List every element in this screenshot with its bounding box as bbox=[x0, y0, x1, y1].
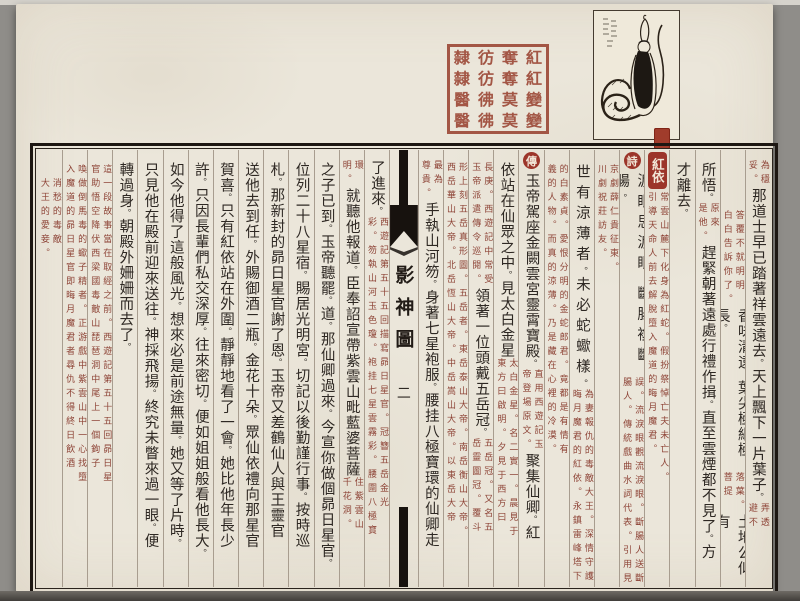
text-column-L4: 位列二十八星宿。賜居光明宮。切記以後勤謹行事。按時巡 bbox=[288, 150, 313, 587]
commentary-line-right: 太白金星。名二實一。晨見于 bbox=[506, 358, 518, 540]
commentary-line-right: 長庚。西遊記中常受 bbox=[481, 162, 493, 288]
spine-top-bar bbox=[399, 150, 408, 205]
text-column-L11: 轉過身。朝殿外姍姍而去了。 bbox=[112, 150, 137, 587]
text-column-R7: 京劇薛仁貴征東。川劇祝莊訪友。 bbox=[594, 150, 619, 587]
commentary-line-left: 明。 bbox=[340, 160, 352, 188]
commentary-line-left: 千花洞。 bbox=[340, 477, 352, 533]
seal-glyph: 隸 bbox=[449, 47, 475, 68]
commentary-line-right: 京劇薛仁貴征東。 bbox=[607, 164, 619, 276]
commentary-line-right: 落葉。 bbox=[733, 472, 745, 514]
commentary-line-right: 最為 bbox=[431, 160, 443, 202]
text-column-R14: 最為尊貴。手執山河笏。身著七星袍服。腰挂八極寶環的仙卿走 bbox=[418, 150, 443, 587]
text-column-L10: 只見他在殿前迎來送往。神採飛揚。終究未瞥來過一眼。便 bbox=[137, 150, 162, 587]
seal-glyph: 彿 bbox=[473, 89, 499, 110]
commentary-note: 答覆不就明明白白告訴你了。 bbox=[721, 210, 745, 308]
text-column-R8: 世有涼薄者。未必蛇蠍樣。為妻報仇的毒敵大王。深情守護晦月魔君的紅依。永鎮雷峰塔下 bbox=[569, 150, 594, 587]
commentary-note: 環明。 bbox=[340, 160, 364, 188]
commentary-line-right: 形上刻五岳真形圖。五岳者。東岳泰山大帝。南岳衡山大帝。 bbox=[456, 162, 468, 540]
main-text: 之子已到。玉帝聽罷。道。那仙卿過來。今宣你做個昴日星官。 bbox=[316, 162, 338, 569]
seal-glyph: 醫 bbox=[449, 110, 475, 131]
main-text: 就聽他報道。臣奉詔宣帶紫雲山毗藍婆菩薩 bbox=[341, 188, 363, 477]
main-text: 聚集仙卿。紅 bbox=[521, 453, 543, 541]
text-column-R5: 紅依常雲山麓下化身為紅蛇。假扮祭悼亡夫未亡人。引導天命人前去解脫墮入魔道的晦月魔… bbox=[644, 150, 669, 587]
text-column-R10: 傳玉帝駕座金闕雲宮靈霄寶殿。直用西遊記玉帝登場原文。聚集仙卿。紅 bbox=[518, 150, 543, 587]
seal-glyph: 莫 bbox=[497, 89, 523, 110]
commentary-line-right: 住紫雲山 bbox=[352, 477, 364, 533]
seal-glyph: 彷 bbox=[473, 47, 499, 68]
text-column-R11: 依站在仙眾之中。見太白金星太白金星。名二實一。晨見于東方曰啟明。夕見于西方曰 bbox=[493, 150, 518, 587]
commentary-line-left: 妥。 bbox=[746, 160, 758, 188]
section-badge: 詩 bbox=[624, 152, 641, 169]
commentary-line-left: 義的人物。而真的涼薄。乃是藏在心裡的冷漠。 bbox=[545, 164, 557, 458]
main-text: 土地公似有 bbox=[720, 514, 745, 587]
commentary-line-left: 避不 bbox=[746, 503, 758, 531]
commentary-line-right: 五岳冠。又名五 bbox=[481, 438, 493, 536]
text-column-R1: 為穩妥。那道士早已踏著祥雲遠去。天上飄下一片葉子。弄透避不 bbox=[745, 150, 770, 587]
commentary-line-left: 岳靈圖冠。覆斗 bbox=[469, 438, 481, 536]
text-column-L1: 了進來。西遊記第五十五回描寫昴日星官。冠簪五岳金光彩。笏執山河玉色瓊。袍挂七星雲… bbox=[364, 150, 389, 587]
spine-bottom-bar bbox=[399, 507, 408, 587]
seal-glyph: 紅 bbox=[521, 47, 547, 68]
commentary-line-right: 西遊記第五十五回描寫昴日星官。冠簪五岳金光 bbox=[377, 217, 389, 539]
main-text: 位列二十八星宿。賜居光明宮。切記以後勤謹行事。按時巡 bbox=[290, 162, 312, 549]
text-column-L12: 這一段故事當在取經之前。西遊記第五十五回昴日星官助悟空降伏西梁國毒敵山琵琶洞中尾… bbox=[87, 150, 112, 587]
section-badge: 傳 bbox=[523, 152, 540, 169]
text-column-R3: 所悟。原來是他。趕緊朝著遠處行禮作揖。直至雲煙都不見了。方 bbox=[695, 150, 720, 587]
main-text: 那道士早已踏著祥雲遠去。天上飄下一片葉子。 bbox=[747, 188, 769, 503]
commentary-note: 落葉。菩提 bbox=[721, 472, 745, 514]
commentary-line-left: 引導天命人前去解脫墮入魔道的晦月魔君。 bbox=[645, 192, 657, 486]
commentary-note: 為穩妥。 bbox=[746, 160, 770, 188]
main-text: 趕緊朝著遠處行禮作揖。直至雲煙都不見了。方 bbox=[697, 245, 719, 560]
commentary-line-left: 大王的愛妾。 bbox=[38, 178, 50, 262]
main-text: 淚眼思淚眼。斷腸複斷腸。 bbox=[619, 173, 644, 377]
snake-spirit-illustration bbox=[593, 10, 680, 140]
main-text: 領著一位頭戴五岳冠。 bbox=[470, 288, 492, 438]
text-column-R6: 詩淚眼思淚眼。斷腸複斷腸。誤。流淚眼觀流淚眼。斷腸人送斷腸人。傳統戲曲水詞代表。… bbox=[619, 150, 644, 587]
text-column-R13: 形上刻五岳真形圖。五岳者。東岳泰山大帝。南岳衡山大帝。西岳華山大帝。北岳恆山大帝… bbox=[443, 150, 468, 587]
page-number: 二 bbox=[397, 383, 411, 403]
commentary-note: 太白金星。名二實一。晨見于東方曰啟明。夕見于西方曰 bbox=[494, 358, 518, 540]
text-column-R2: 答覆不就明明白白告訴你了。香味清遠。葉尖極細極長。落葉。菩提土地公似有 bbox=[720, 150, 745, 587]
fishtail-mark bbox=[390, 205, 418, 247]
text-column-L3: 之子已到。玉帝聽罷。道。那仙卿過來。今宣你做個昴日星官。 bbox=[314, 150, 339, 587]
main-text: 許。只因長輩們私交深厚。往來密切。便如姐姐般看他長大。 bbox=[190, 162, 212, 559]
commentary-line-left: 帝登場原文。 bbox=[520, 369, 532, 453]
book-page-viewer: { "book": { "title": "影神圖", "page_number… bbox=[0, 0, 800, 601]
commentary-line-right: 答覆不就明明 bbox=[733, 210, 745, 308]
text-columns: 為穩妥。那道士早已踏著祥雲遠去。天上飄下一片葉子。弄透避不答覆不就明明白白告訴你… bbox=[38, 150, 770, 587]
commentary-note: 京劇薛仁貴征東。川劇祝莊訪友。 bbox=[595, 164, 619, 276]
seal-glyph: 彿 bbox=[473, 110, 499, 131]
commentary-note: 弄透避不 bbox=[746, 503, 770, 531]
commentary-note: 直用西遊記玉帝登場原文。 bbox=[519, 369, 543, 453]
seal-glyph: 變 bbox=[521, 89, 547, 110]
commentary-line-right: 喚做倒馬毒的蠍子精者。正游戲中紫雲山中一心找墮 bbox=[75, 164, 87, 486]
commentary-note: 住紫雲山千花洞。 bbox=[340, 477, 364, 533]
book-page: 隸彷奪紅隸彷奪紅醫彿莫變醫彿莫變 bbox=[16, 4, 773, 592]
commentary-line-left: 彩。笏執山河玉色瓊。袍挂七星雲霧彩。腰圍八極寶 bbox=[365, 217, 377, 539]
fishtail-echo-line bbox=[390, 247, 418, 256]
seal-glyph: 奪 bbox=[497, 47, 523, 68]
seal-glyph: 紅 bbox=[521, 68, 547, 89]
main-text: 了進來。 bbox=[366, 160, 388, 217]
commentary-note: 的白素貞。愛恨分明的金蛇郎君。竟都是有情有義的人物。而真的涼薄。乃是藏在心裡的冷… bbox=[545, 164, 569, 458]
commentary-line-left: 東方曰啟明。夕見于西方曰 bbox=[494, 358, 506, 540]
commentary-line-left: 腸人。傳統戲曲水詞代表。引用見 bbox=[620, 377, 632, 587]
main-text: 玉帝駕座金闕雲宮靈霄寶殿。 bbox=[521, 173, 543, 369]
commentary-line-right: 為穩 bbox=[758, 160, 770, 188]
main-text: 如今他得了這般風光。想來必是前途無量。她又等了片時。 bbox=[165, 162, 187, 549]
commentary-line-right: 原來 bbox=[708, 203, 720, 245]
text-column-L2: 環明。就聽他報道。臣奉詔宣帶紫雲山毗藍婆菩薩住紫雲山千花洞。 bbox=[339, 150, 364, 587]
commentary-line-left: 晦月魔君的紅依。永鎮雷峰塔下 bbox=[570, 389, 582, 585]
main-text: 送他去到任。外賜御酒二瓶。金花十朵。眾仙依禮向那星官 bbox=[240, 162, 262, 549]
commentary-line-right: 誤。流淚眼觀流淚眼。斷腸人送斷 bbox=[632, 377, 644, 587]
commentary-note: 形上刻五岳真形圖。五岳者。東岳泰山大帝。南岳衡山大帝。西岳華山大帝。北岳恆山大帝… bbox=[444, 162, 468, 540]
text-column-L6: 送他去到任。外賜御酒二瓶。金花十朵。眾仙依禮向那星官 bbox=[238, 150, 263, 587]
commentary-line-left: 川劇祝莊訪友。 bbox=[595, 164, 607, 276]
commentary-note: 誤。流淚眼觀流淚眼。斷腸人送斷腸人。傳統戲曲水詞代表。引用見 bbox=[620, 377, 644, 587]
commentary-line-left: 尊貴。 bbox=[419, 160, 431, 202]
text-block-inner-border: 為穩妥。那道士早已踏著祥雲遠去。天上飄下一片葉子。弄透避不答覆不就明明白白告訴你… bbox=[35, 148, 773, 589]
main-text: 香味清遠。葉尖極細極長。 bbox=[720, 308, 745, 472]
commentary-line-left: 是他。 bbox=[696, 203, 708, 245]
commentary-note: 西遊記第五十五回描寫昴日星官。冠簪五岳金光彩。笏執山河玉色瓊。袍挂七星雲霧彩。腰… bbox=[365, 217, 389, 539]
commentary-note: 原來是他。 bbox=[696, 203, 720, 245]
commentary-line-right: 弄透 bbox=[758, 503, 770, 531]
commentary-line-right: 直用西遊記玉 bbox=[532, 369, 544, 453]
commentary-note: 消愁的毒敵大王的愛妾。 bbox=[38, 178, 62, 262]
text-column-R12: 長庚。西遊記中常受玉帝派遣傳令巡閱。領著一位頭戴五岳冠。五岳冠。又名五岳靈圖冠。… bbox=[468, 150, 493, 587]
seal-glyph: 變 bbox=[521, 110, 547, 131]
window-frame-bottom bbox=[0, 591, 800, 601]
commentary-line-left: 入魔道的昴日星官即晦月魔君者尋仇不得終日飲酒 bbox=[63, 164, 75, 486]
main-text: 依站在仙眾之中。見太白金星 bbox=[495, 162, 517, 358]
seal-glyph: 莫 bbox=[497, 110, 523, 131]
text-column-R4: 才離去。 bbox=[669, 150, 694, 587]
commentary-note: 常雲山麓下化身為紅蛇。假扮祭悼亡夫未亡人。引導天命人前去解脫墮入魔道的晦月魔君。 bbox=[645, 192, 669, 486]
commentary-line-right: 的白素貞。愛恨分明的金蛇郎君。竟都是有情有 bbox=[557, 164, 569, 458]
commentary-line-left: 玉帝派遣傳令巡閱。 bbox=[469, 162, 481, 288]
main-text: 所悟。 bbox=[697, 162, 719, 203]
commentary-line-right: 為妻報仇的毒敵大王。深情守護 bbox=[582, 389, 594, 585]
text-column-R9: 的白素貞。愛恨分明的金蛇郎君。竟都是有情有義的人物。而真的涼薄。乃是藏在心裡的冷… bbox=[544, 150, 569, 587]
main-text: 世有涼薄者。未必蛇蠍樣。 bbox=[571, 164, 593, 389]
red-collector-seal: 隸彷奪紅隸彷奪紅醫彿莫變醫彿莫變 bbox=[447, 44, 549, 134]
text-column-L13: 喚做倒馬毒的蠍子精者。正游戲中紫雲山中一心找墮入魔道的昴日星官即晦月魔君者尋仇不… bbox=[62, 150, 87, 587]
main-text: 轉過身。朝殿外姍姍而去了。 bbox=[114, 162, 136, 353]
seal-glyph: 彷 bbox=[473, 68, 499, 89]
commentary-line-right: 這一段故事當在取經之前。西遊記第五十五回昴日星 bbox=[100, 164, 112, 486]
text-column-L14: 消愁的毒敵大王的愛妾。 bbox=[38, 150, 62, 587]
text-block-border: 為穩妥。那道士早已踏著祥雲遠去。天上飄下一片葉子。弄透避不答覆不就明明白白告訴你… bbox=[30, 143, 778, 594]
main-text: 賀喜。只有紅依站在外圍。靜靜地看了一會。她比他年長少 bbox=[215, 162, 237, 549]
text-column-L7: 賀喜。只有紅依站在外圍。靜靜地看了一會。她比他年長少 bbox=[213, 150, 238, 587]
commentary-line-left: 官助悟空降伏西梁國毒敵山琵琶洞中尾上一個鉤子 bbox=[88, 164, 100, 486]
main-text: 札。那新封的昴日星官謝了恩。玉帝又差鶴仙人與王靈官 bbox=[265, 162, 287, 539]
commentary-note: 這一段故事當在取經之前。西遊記第五十五回昴日星官助悟空降伏西梁國毒敵山琵琶洞中尾… bbox=[88, 164, 112, 486]
text-column-L8: 許。只因長輩們私交深厚。往來密切。便如姐姐般看他長大。 bbox=[188, 150, 213, 587]
commentary-note: 長庚。西遊記中常受玉帝派遣傳令巡閱。 bbox=[469, 162, 493, 288]
commentary-note: 為妻報仇的毒敵大王。深情守護晦月魔君的紅依。永鎮雷峰塔下 bbox=[570, 389, 594, 585]
text-column-L5: 札。那新封的昴日星官謝了恩。玉帝又差鶴仙人與王靈官 bbox=[263, 150, 288, 587]
seal-glyph: 隸 bbox=[449, 68, 475, 89]
commentary-note: 最為尊貴。 bbox=[419, 160, 443, 202]
woodcut-snake-woman-icon bbox=[594, 11, 677, 137]
commentary-line-left: 白白告訴你了。 bbox=[721, 210, 733, 308]
text-column-L9: 如今他得了這般風光。想來必是前途無量。她又等了片時。 bbox=[163, 150, 188, 587]
book-title: 影神圖 bbox=[390, 265, 417, 361]
commentary-line-right: 環 bbox=[352, 160, 364, 188]
commentary-note: 喚做倒馬毒的蠍子精者。正游戲中紫雲山中一心找墮入魔道的昴日星官即晦月魔君者尋仇不… bbox=[63, 164, 87, 486]
commentary-line-right: 常雲山麓下化身為紅蛇。假扮祭悼亡夫未亡人。 bbox=[657, 192, 669, 486]
main-text: 只見他在殿前迎來送往。神採飛揚。終究未瞥來過一眼。便 bbox=[140, 162, 162, 549]
seal-glyph: 奪 bbox=[497, 68, 523, 89]
commentary-line-right: 消愁的毒敵 bbox=[50, 178, 62, 262]
commentary-note: 五岳冠。又名五岳靈圖冠。覆斗 bbox=[469, 438, 493, 536]
main-text: 才離去。 bbox=[671, 162, 693, 219]
entry-title-badge: 紅依 bbox=[648, 152, 667, 189]
seal-glyph: 醫 bbox=[449, 89, 475, 110]
spine-column: 影神圖二 bbox=[389, 150, 418, 587]
commentary-line-left: 西岳華山大帝。北岳恆山大帝。中岳嵩山大帝。以東岳大帝 bbox=[444, 162, 456, 540]
commentary-line-left: 菩提 bbox=[721, 472, 733, 514]
main-text: 手執山河笏。身著七星袍服。腰挂八極寶環的仙卿走 bbox=[420, 202, 442, 548]
